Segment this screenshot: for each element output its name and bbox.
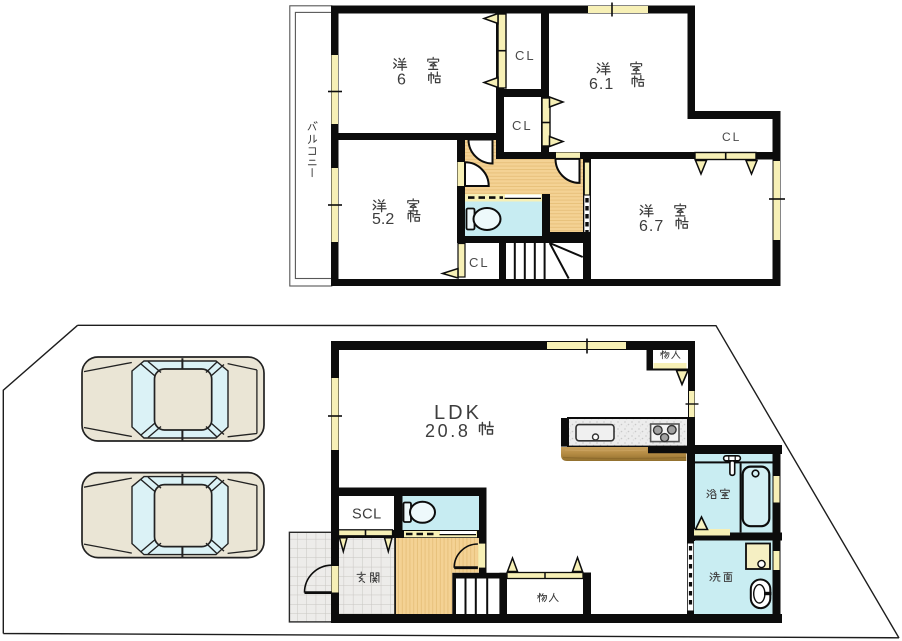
svg-text:CL: CL — [512, 118, 533, 133]
svg-text:6.1: 6.1 — [589, 76, 614, 93]
svg-text:6: 6 — [397, 72, 406, 89]
svg-text:SCL: SCL — [352, 507, 382, 523]
svg-text:CL: CL — [515, 48, 536, 63]
svg-text:CL: CL — [722, 130, 741, 144]
svg-text:5.2: 5.2 — [372, 211, 394, 228]
svg-text:CL: CL — [469, 255, 490, 270]
svg-text:20.8: 20.8 — [425, 421, 470, 441]
svg-text:6.7: 6.7 — [639, 218, 664, 235]
